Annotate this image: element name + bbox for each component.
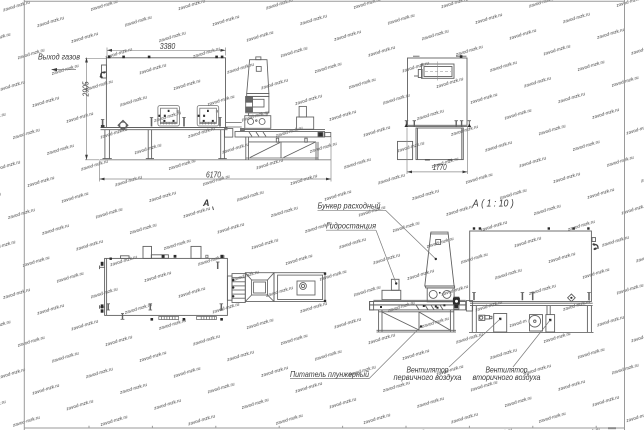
- svg-text:А: А: [202, 198, 210, 209]
- svg-text:Гидростанция: Гидростанция: [326, 220, 376, 230]
- svg-text:3380: 3380: [160, 41, 176, 51]
- svg-text:1770: 1770: [433, 162, 447, 172]
- svg-text:2905: 2905: [80, 81, 90, 97]
- svg-text:Бункер расходный: Бункер расходный: [318, 201, 381, 211]
- svg-text:6170: 6170: [206, 169, 221, 179]
- svg-text:Выход газов: Выход газов: [38, 53, 80, 62]
- svg-text:первичного воздуха: первичного воздуха: [394, 372, 462, 382]
- svg-text:А ( 1 : 10 ): А ( 1 : 10 ): [472, 199, 514, 210]
- svg-text:вторичного воздуха: вторичного воздуха: [473, 372, 541, 382]
- svg-text:Питатель плунжерный: Питатель плунжерный: [290, 369, 369, 379]
